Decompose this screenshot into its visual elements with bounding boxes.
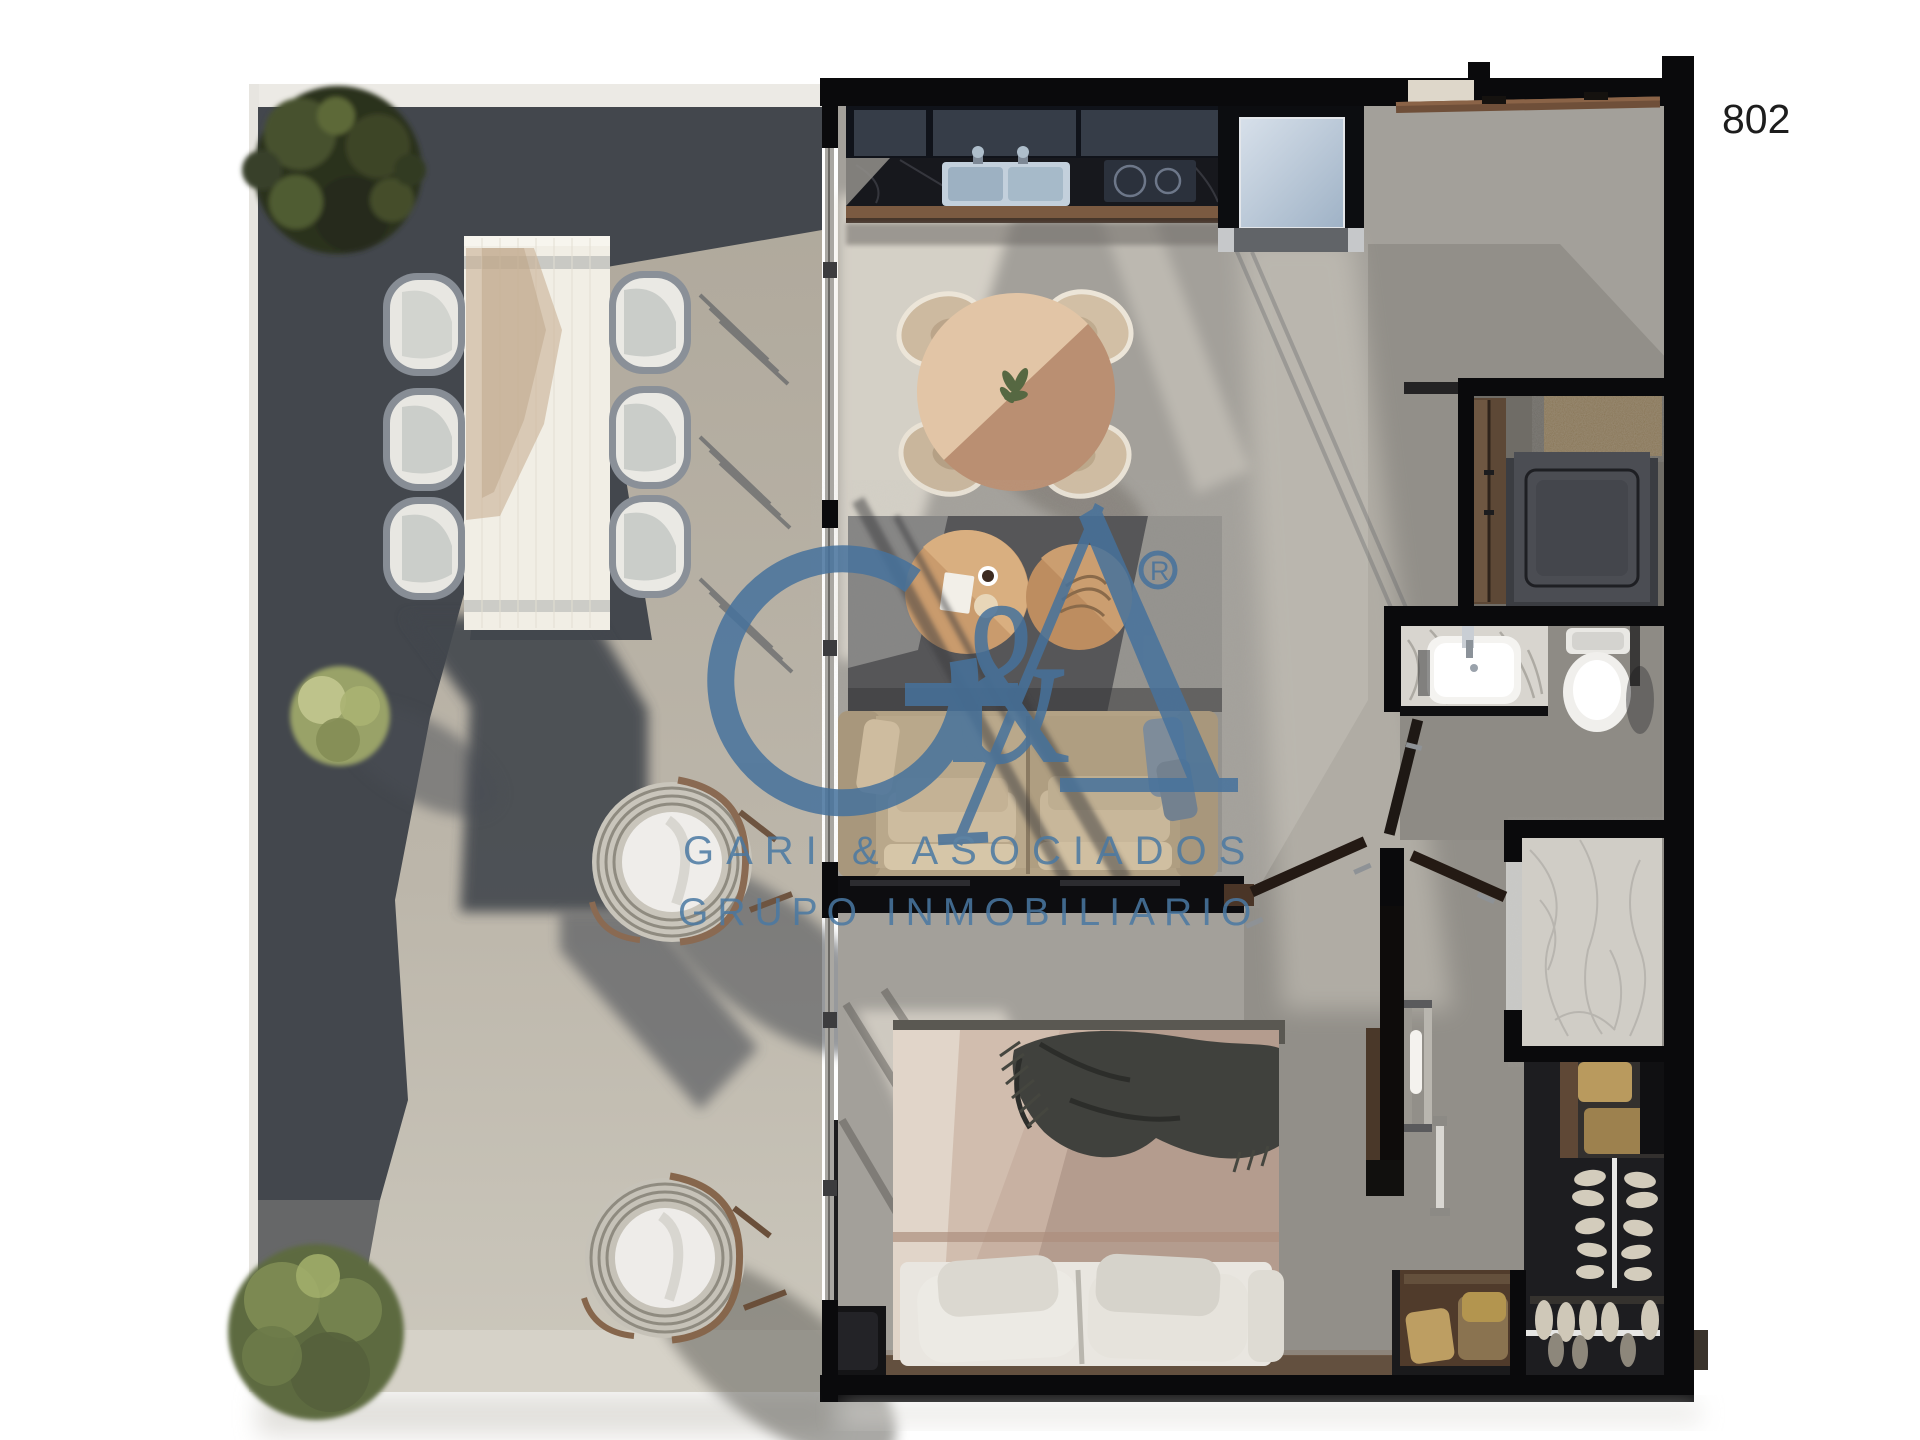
svg-text:&: & (956, 554, 1071, 814)
svg-text:R: R (1150, 556, 1170, 586)
svg-text:GRUPO INMOBILIARIO: GRUPO INMOBILIARIO (678, 891, 1260, 934)
svg-text:GARI & ASOCIADOS: GARI & ASOCIADOS (683, 829, 1257, 873)
svg-text:802: 802 (1722, 96, 1790, 142)
